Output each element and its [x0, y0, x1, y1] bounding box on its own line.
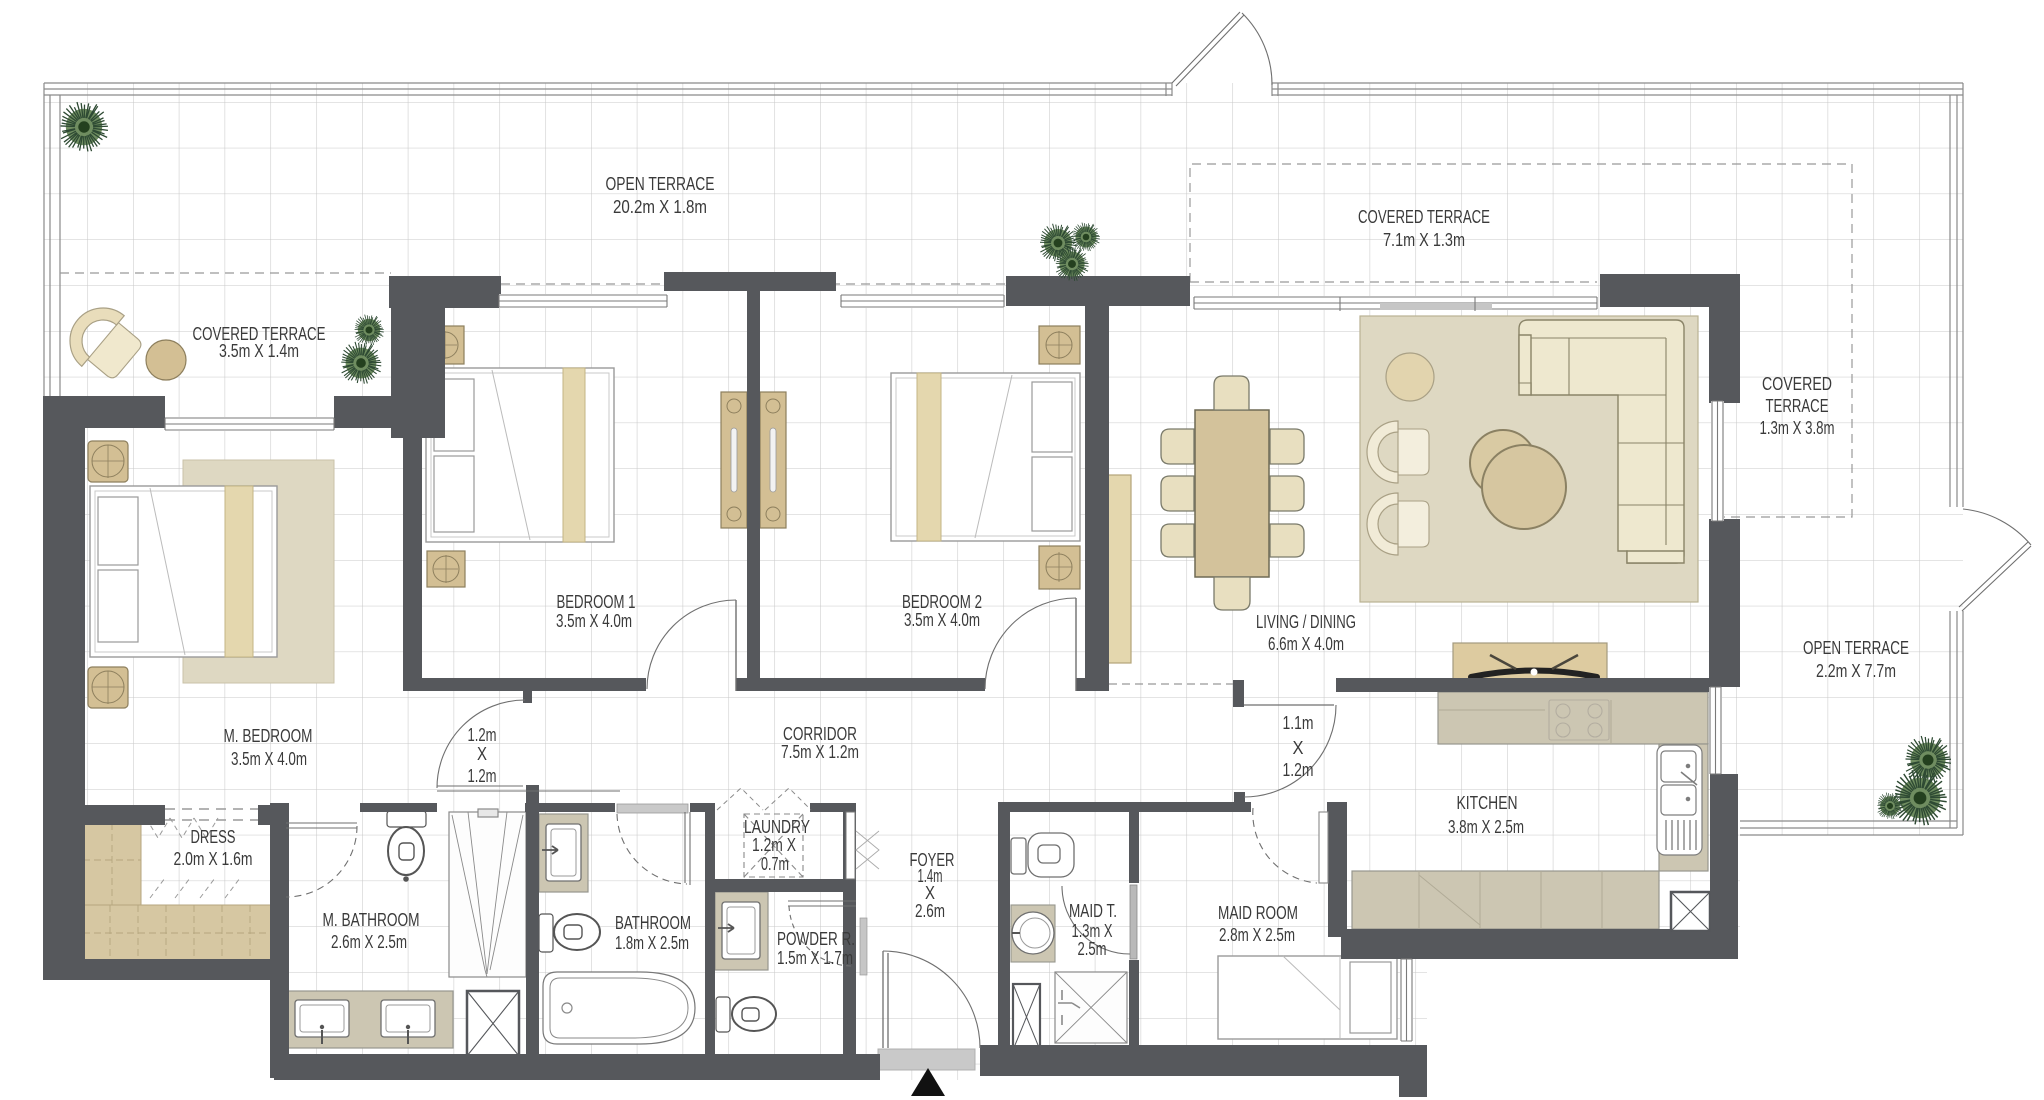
- svg-text:1.3m X: 1.3m X: [1072, 921, 1113, 941]
- svg-text:3.8m X 2.5m: 3.8m X 2.5m: [1448, 817, 1524, 837]
- svg-text:BATHROOM: BATHROOM: [615, 913, 691, 933]
- svg-text:LIVING / DINING: LIVING / DINING: [1256, 612, 1356, 632]
- svg-text:1.8m X 2.5m: 1.8m X 2.5m: [615, 933, 689, 953]
- svg-text:7.1m X 1.3m: 7.1m X 1.3m: [1383, 230, 1465, 250]
- svg-text:TERRACE: TERRACE: [1766, 396, 1829, 416]
- svg-text:1.3m X 3.8m: 1.3m X 3.8m: [1760, 418, 1835, 438]
- svg-text:M. BEDROOM: M. BEDROOM: [224, 726, 313, 746]
- svg-text:X: X: [477, 744, 487, 764]
- svg-text:KITCHEN: KITCHEN: [1457, 793, 1518, 813]
- svg-text:1.2m: 1.2m: [1283, 760, 1314, 780]
- svg-text:1.2m: 1.2m: [468, 766, 497, 786]
- svg-text:3.5m X 4.0m: 3.5m X 4.0m: [556, 611, 632, 631]
- svg-text:X: X: [925, 883, 935, 903]
- svg-text:20.2m X 1.8m: 20.2m X 1.8m: [613, 197, 707, 217]
- svg-text:2.6m X 2.5m: 2.6m X 2.5m: [331, 932, 407, 952]
- svg-text:1.1m: 1.1m: [1283, 713, 1314, 733]
- svg-text:POWDER R.: POWDER R.: [777, 929, 855, 949]
- svg-text:COVERED TERRACE: COVERED TERRACE: [1358, 207, 1490, 227]
- svg-text:7.5m X 1.2m: 7.5m X 1.2m: [781, 742, 859, 762]
- svg-text:MAID T.: MAID T.: [1069, 901, 1117, 921]
- svg-text:MAID ROOM: MAID ROOM: [1218, 903, 1298, 923]
- svg-text:OPEN TERRACE: OPEN TERRACE: [1803, 638, 1909, 658]
- svg-text:0.7m: 0.7m: [761, 854, 789, 874]
- svg-text:1.5m X 1.7m: 1.5m X 1.7m: [777, 948, 853, 968]
- svg-text:M. BATHROOM: M. BATHROOM: [323, 910, 420, 930]
- svg-text:DRESS: DRESS: [191, 827, 236, 847]
- svg-text:3.5m X 4.0m: 3.5m X 4.0m: [904, 610, 980, 630]
- svg-text:BEDROOM 2: BEDROOM 2: [902, 592, 982, 612]
- svg-text:COVERED: COVERED: [1762, 374, 1832, 394]
- svg-text:3.5m X 1.4m: 3.5m X 1.4m: [219, 341, 299, 361]
- svg-text:2.8m X 2.5m: 2.8m X 2.5m: [1219, 925, 1295, 945]
- svg-text:CORRIDOR: CORRIDOR: [783, 724, 857, 744]
- svg-text:2.6m: 2.6m: [915, 901, 945, 921]
- svg-text:2.5m: 2.5m: [1078, 939, 1107, 959]
- svg-text:X: X: [1293, 738, 1304, 758]
- svg-text:1.2m X: 1.2m X: [752, 835, 796, 855]
- svg-text:LAUNDRY: LAUNDRY: [744, 817, 810, 837]
- svg-text:BEDROOM 1: BEDROOM 1: [557, 592, 636, 612]
- svg-text:1.2m: 1.2m: [468, 725, 497, 745]
- svg-text:3.5m X 4.0m: 3.5m X 4.0m: [231, 749, 307, 769]
- svg-text:2.0m X 1.6m: 2.0m X 1.6m: [174, 849, 253, 869]
- svg-text:2.2m X 7.7m: 2.2m X 7.7m: [1816, 661, 1896, 681]
- svg-text:OPEN TERRACE: OPEN TERRACE: [606, 174, 715, 194]
- svg-text:6.6m X 4.0m: 6.6m X 4.0m: [1268, 634, 1344, 654]
